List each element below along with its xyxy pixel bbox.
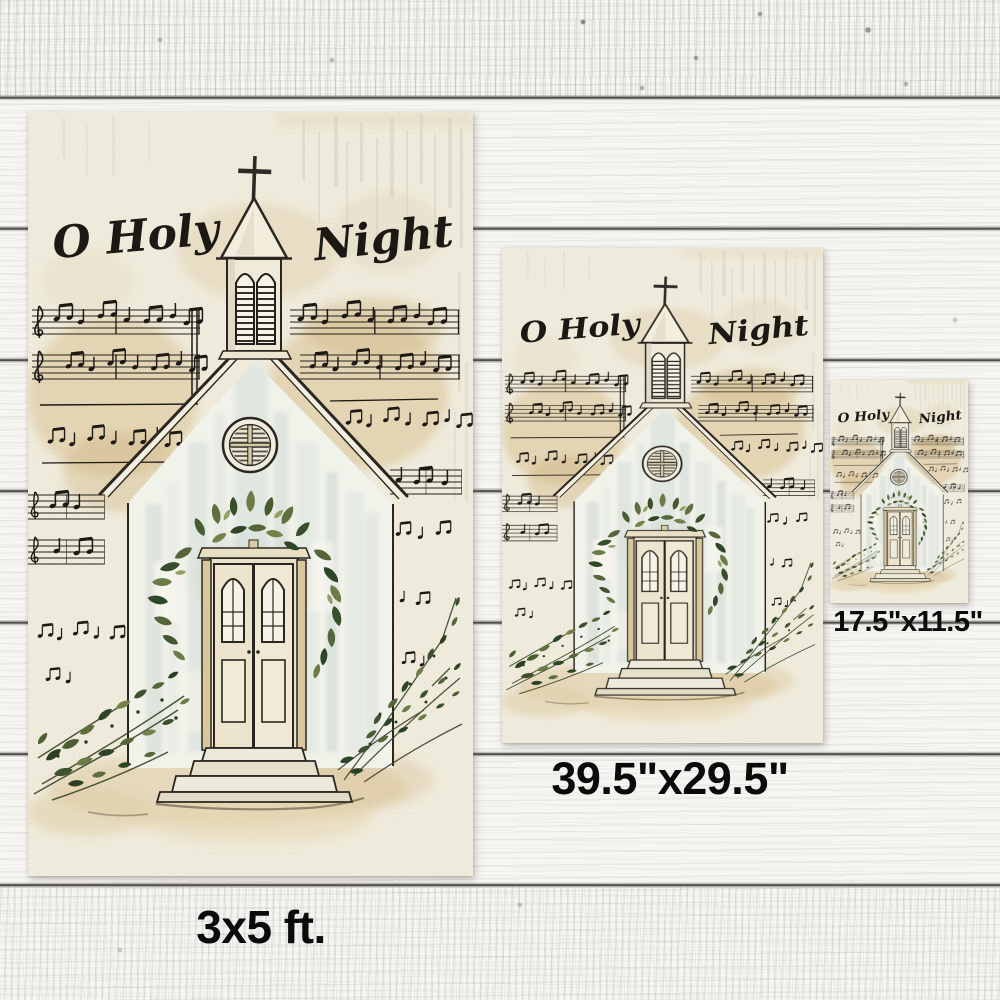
church-artwork [502,248,823,743]
church-artwork [830,380,968,603]
product-photo: O Holy Night 3x5 ft. 39.5"x29.5" 17.5"x1… [0,0,1000,1000]
flag-17x11 [830,380,968,603]
flag-3x5ft [28,112,473,876]
flag-39x29 [502,248,823,743]
wood-plank-bottom-texture [0,887,1000,1000]
size-label-3x5ft: 3x5 ft. [196,900,325,954]
size-label-39x29: 39.5"x29.5" [551,753,788,805]
wood-plank-top-texture [0,0,1000,97]
size-label-17x11: 17.5"x11.5" [833,606,982,639]
church-artwork [28,112,473,876]
